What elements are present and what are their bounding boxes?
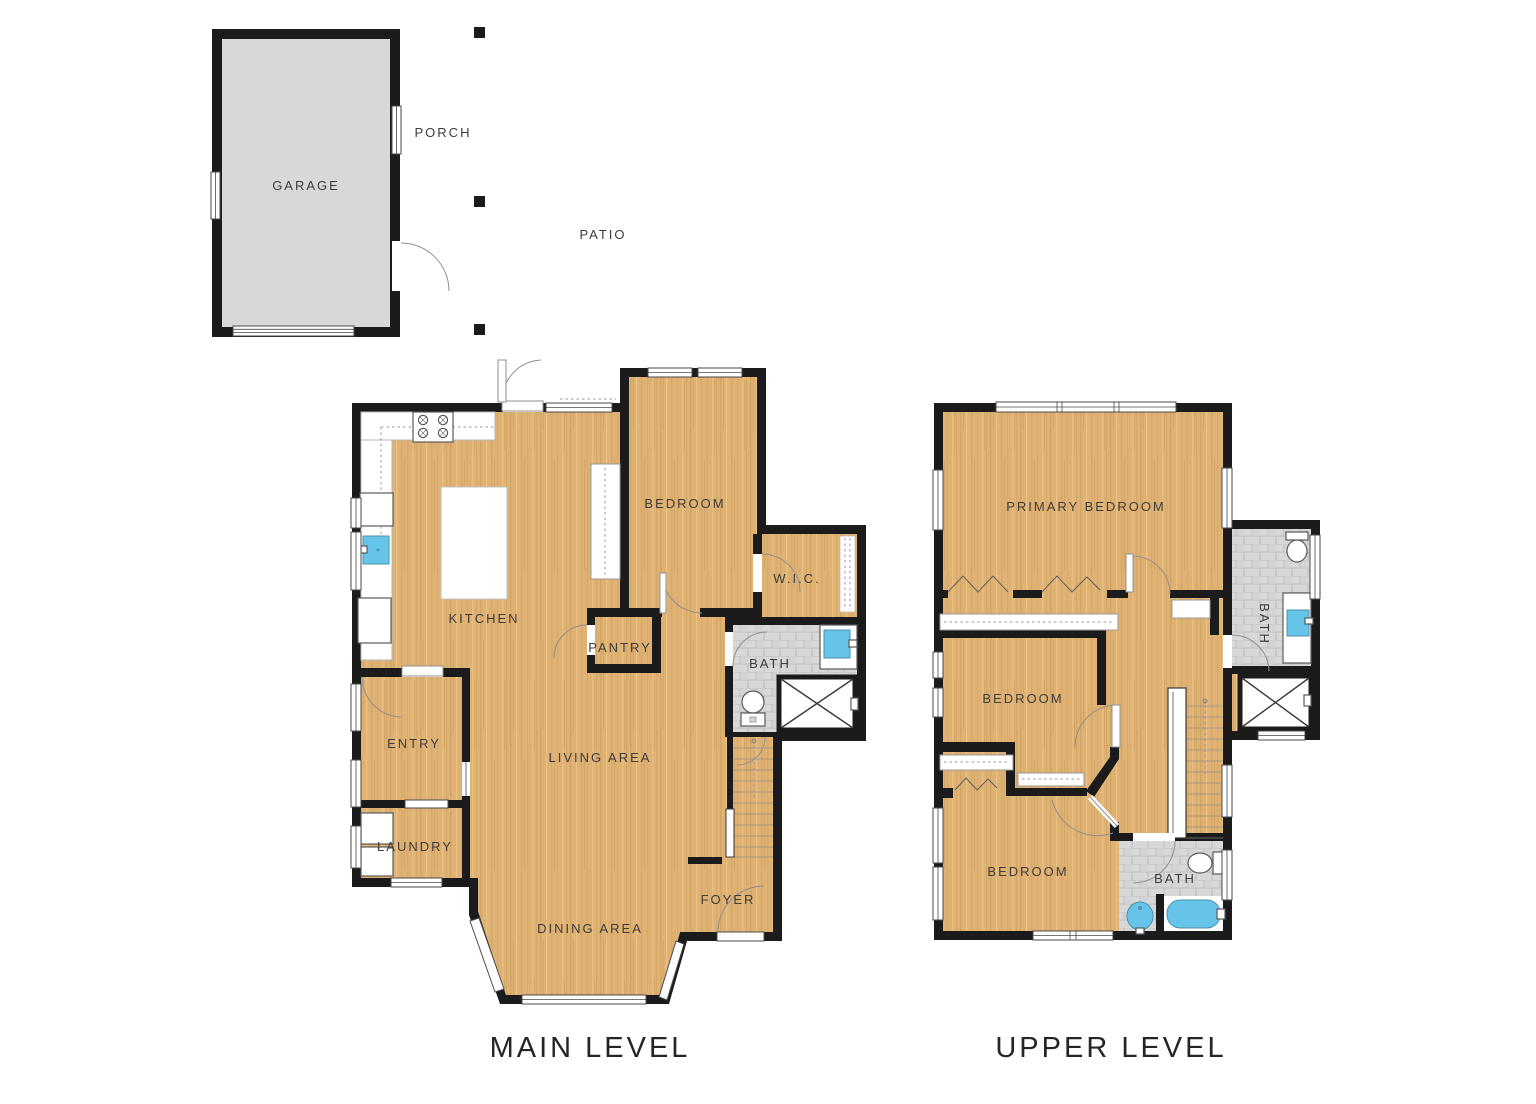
living-label: LIVING AREA — [549, 750, 652, 765]
garage-label: GARAGE — [272, 178, 340, 193]
laundry-cased-opening — [405, 800, 448, 808]
stove-icon — [413, 412, 453, 442]
garage-overhead-door — [233, 326, 354, 336]
porch-and-patio: PORCH PATIO — [415, 27, 627, 335]
upper-stair-railing — [1168, 688, 1186, 838]
main-bath: BATH — [725, 625, 858, 732]
ensuite-shower-icon — [1240, 676, 1311, 729]
dining-label: DINING AREA — [537, 921, 643, 936]
entry-label: ENTRY — [387, 736, 441, 751]
main-bedroom-label: BEDROOM — [644, 496, 725, 511]
primary-bedroom-label: PRIMARY BEDROOM — [1006, 499, 1166, 514]
main-level-caption: MAIN LEVEL — [490, 1032, 691, 1064]
primary-door-leaf — [1126, 554, 1133, 592]
kitchen-label: KITCHEN — [448, 611, 519, 626]
garage-door-opening — [392, 241, 401, 291]
wic-label: W.I.C. — [773, 571, 820, 586]
main-bath-label: BATH — [749, 656, 791, 671]
porch-post-1 — [474, 27, 485, 38]
foyer-door-sill — [717, 932, 764, 941]
upper-ensuite-bath: BATH — [1223, 529, 1320, 740]
mid-bedroom-label: BEDROOM — [982, 691, 1063, 706]
ensuite-toilet-icon — [1286, 532, 1308, 562]
bedroom-door-leaf — [660, 573, 666, 613]
bottom-bedroom-label: BEDROOM — [987, 864, 1068, 879]
laundry-label: LAUNDRY — [377, 839, 453, 854]
upper-level-plan: PRIMARY BEDROOM BEDROOM BEDROOM — [933, 402, 1320, 940]
toilet-icon — [741, 691, 765, 726]
hall-bath-label: BATH — [1154, 871, 1196, 886]
garage-door-swing — [401, 243, 449, 291]
stair-railing — [726, 809, 734, 857]
shower-icon — [779, 677, 858, 730]
main-level-plan: KITCHEN BEDROOM W.I.C. PANTRY — [351, 360, 866, 1004]
kitchen-island — [441, 487, 507, 599]
ensuite-sink-icon — [1283, 593, 1313, 663]
mid-bedroom-door-leaf — [1112, 705, 1120, 747]
refrigerator-icon — [360, 493, 393, 526]
kitchen-sink-icon — [360, 536, 389, 564]
garage-structure: GARAGE — [211, 29, 449, 337]
bathtub-icon — [1167, 900, 1220, 928]
floor-plan-drawing: GARAGE PORCH PATIO — [0, 0, 1536, 1104]
foyer-label: FOYER — [701, 892, 756, 907]
porch-post-2 — [474, 196, 485, 207]
linen-shelf — [1172, 600, 1210, 618]
main-top-openings — [498, 360, 616, 412]
kitchen-exterior-door-leaf — [498, 360, 506, 402]
porch-label: PORCH — [415, 125, 472, 140]
pantry-label: PANTRY — [588, 640, 652, 655]
kitchen-exterior-door-swing — [502, 360, 541, 401]
main-bath-sink-icon — [820, 625, 857, 669]
dishwasher-icon — [358, 598, 391, 643]
living-builtin-cabinet — [591, 464, 620, 579]
upper-level-caption: UPPER LEVEL — [995, 1032, 1226, 1064]
ensuite-bath-label: BATH — [1257, 603, 1272, 645]
floor-plan-page: GARAGE PORCH PATIO — [0, 0, 1536, 1104]
porch-post-3 — [474, 324, 485, 335]
upper-hall-bath: BATH — [1119, 833, 1225, 934]
patio-label: PATIO — [579, 227, 626, 242]
